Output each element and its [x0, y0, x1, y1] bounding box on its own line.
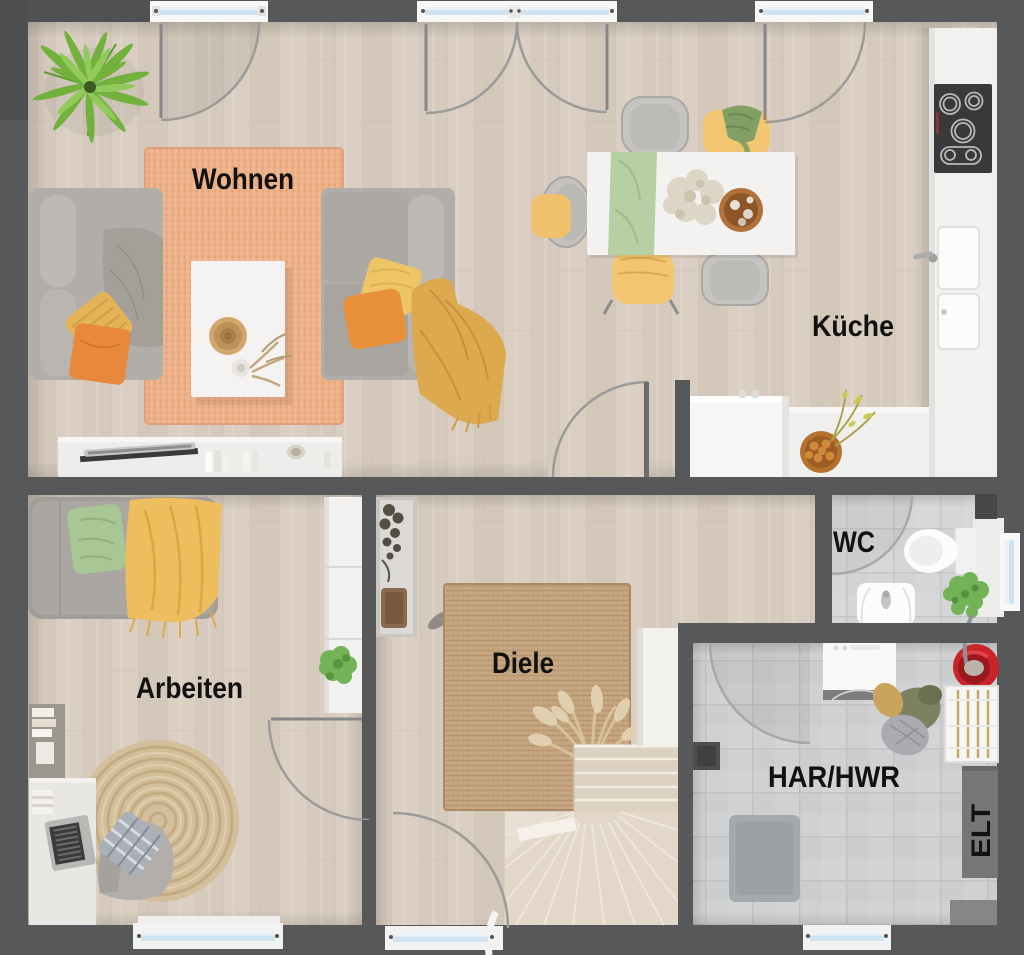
- svg-text:HAR/HWR: HAR/HWR: [768, 761, 900, 794]
- svg-text:ELT: ELT: [966, 803, 996, 858]
- svg-text:Arbeiten: Arbeiten: [136, 672, 243, 705]
- svg-text:WC: WC: [833, 526, 875, 559]
- svg-text:Diele: Diele: [492, 647, 554, 680]
- svg-text:Wohnen: Wohnen: [192, 163, 294, 196]
- svg-text:Küche: Küche: [812, 310, 894, 343]
